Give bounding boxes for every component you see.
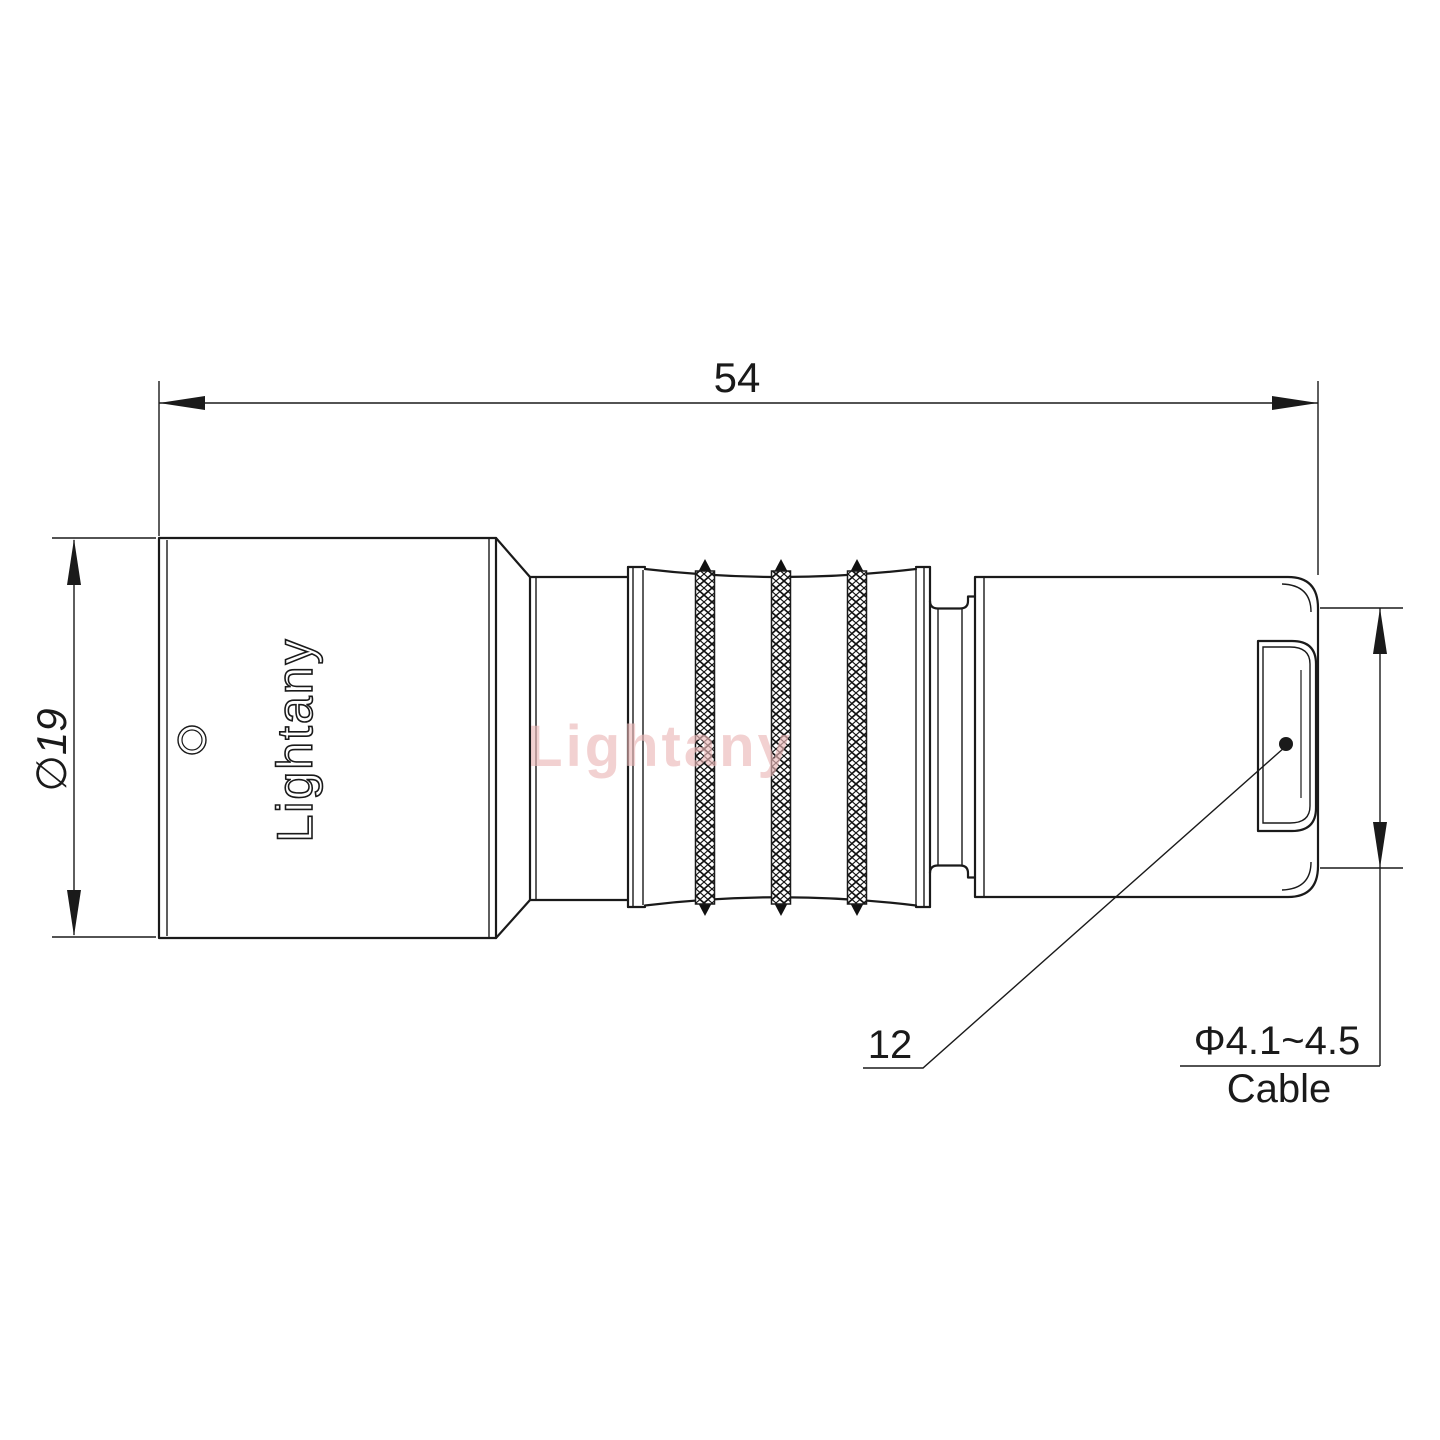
rear-nut-corner-detail [1282, 584, 1311, 890]
rear-nut-outline [975, 577, 1318, 897]
cable-bushing-inner [1263, 647, 1310, 823]
keying-hole-inner [182, 730, 202, 750]
dim-text-overall-length: 54 [714, 354, 761, 401]
arrowhead-right [1272, 396, 1318, 410]
arrowhead-cable-up [1373, 608, 1387, 654]
rear-nut-cylinder [975, 577, 1318, 897]
dimension-body-diameter: ∅19 [28, 538, 156, 937]
groove-floor-lines [938, 609, 962, 866]
watermark-text: Lightany [527, 714, 793, 779]
dimension-overall-length: 54 [159, 354, 1318, 575]
knurl-band-3-strip [848, 571, 867, 904]
dimension-cable-entry: Φ4.1~4.5 Cable [1180, 608, 1403, 1111]
front-shell-outline [159, 538, 496, 938]
dim-text-body-diameter: ∅19 [28, 708, 75, 791]
front-shell-body: Lightany [159, 538, 496, 938]
arrowhead-cable-down [1373, 822, 1387, 868]
knurl-band-3 [848, 559, 867, 916]
cable-bushing-outer [1258, 641, 1316, 831]
connector-drawing-canvas: Lightany [0, 0, 1440, 1440]
engraved-logo-text: Lightany [267, 637, 323, 842]
groove-top-profile [930, 597, 975, 609]
cable-diameter-text: Φ4.1~4.5 [1194, 1019, 1360, 1063]
rear-length-text: 12 [868, 1023, 913, 1067]
cable-word-text: Cable [1227, 1067, 1332, 1111]
taper-lines [496, 538, 530, 938]
leader-dot [1279, 737, 1293, 751]
groove-bottom-profile [930, 866, 975, 878]
drawing-root: Lightany [28, 354, 1403, 1111]
arrowhead-left [159, 396, 205, 410]
arrowhead-down [67, 890, 81, 936]
technical-drawing-page: Lightany [0, 0, 1440, 1440]
arrowhead-up [67, 539, 81, 585]
neck-groove [930, 597, 975, 878]
